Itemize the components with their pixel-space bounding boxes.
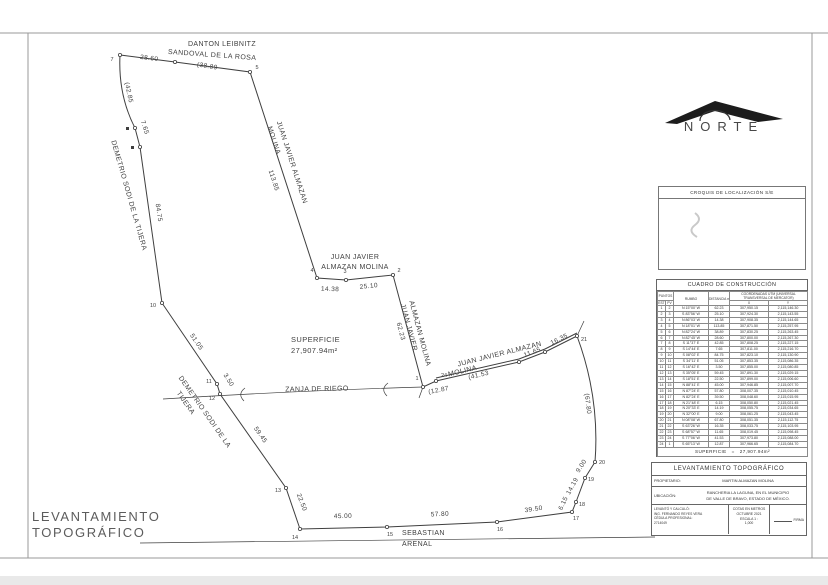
col-header-est: EST <box>658 301 666 306</box>
drawing-label: 39.50 <box>524 505 543 515</box>
north-arrow: NORTE <box>648 86 808 150</box>
page-edge-strip <box>0 576 828 585</box>
drawing-label: (67.80 <box>583 393 592 415</box>
point-number: 18 <box>579 502 585 508</box>
drawing-label: 14.19 <box>565 477 580 496</box>
drawing-label: 6.15 <box>557 495 569 511</box>
drawing-label: 113.85 <box>267 169 280 192</box>
location-sketch-canvas <box>659 199 805 269</box>
corner-tick <box>577 321 584 336</box>
sheet-title-line2: TOPOGRÁFICO <box>32 525 160 541</box>
drawing-label: ALMAZAN MOLINA <box>321 264 388 271</box>
point-marker <box>543 350 546 353</box>
point-marker <box>344 278 347 281</box>
drawing-label: ARENAL <box>402 541 432 548</box>
construction-table-box: CUADRO DE CONSTRUCCIÓN PUNTOS RUMBO DIST… <box>656 279 808 457</box>
surveyor-cell: LEVANTÓ Y CALCULÓ: ING. FERNANDO REYES V… <box>652 505 728 534</box>
location-line2: DE VALLE DE BRAVO, ESTADO DE MÉXICO. <box>690 496 806 502</box>
point-marker <box>575 334 578 337</box>
location-sketch-title: CROQUIS DE LOCALIZACIÓN S/E <box>659 187 805 199</box>
point-marker <box>583 476 586 479</box>
owner-row: PROPIETARIO: MARTIN ALMAZAN MOLINA <box>652 476 806 487</box>
point-marker <box>248 70 251 73</box>
survey-content: 1234571011121314151617181920212462.2325.… <box>109 41 655 548</box>
point-number: 21 <box>581 337 587 343</box>
point-number: 24 <box>441 373 447 379</box>
location-row: UBICACIÓN: RANCHERIA LA LAGUNA, EN EL MU… <box>652 487 806 505</box>
superficie-eq: = <box>732 449 735 454</box>
zanja-arc-mark <box>384 383 388 396</box>
drawing-label: 59.45 <box>252 426 268 445</box>
point-number: 2 <box>397 268 400 274</box>
drawing-label: SUPERFICIE <box>291 335 340 344</box>
croquis-sketch <box>691 213 699 237</box>
point-marker <box>133 126 136 129</box>
point-number: 16 <box>497 527 503 533</box>
superficie-value: 27,907.94m² <box>740 449 770 454</box>
point-marker <box>570 510 573 513</box>
signature-label: FIRMA <box>793 518 804 522</box>
drawing-label: ZANJA DE RIEGO <box>285 385 349 393</box>
drawing-label: 3.50 <box>222 372 235 388</box>
drawing-label: DEMETRIO SODI DE LA <box>177 375 232 449</box>
road-line <box>140 537 655 543</box>
point-marker <box>173 60 176 63</box>
point-marker <box>385 525 388 528</box>
owner-label: PROPIETARIO: <box>652 479 690 483</box>
point-marker <box>284 486 287 489</box>
point-marker <box>434 379 437 382</box>
point-marker <box>160 301 163 304</box>
superficie-row: SUPERFICIE = 27,907.94m² <box>658 447 808 456</box>
drawing-label: 22.50 <box>295 493 308 513</box>
point-number: 17 <box>573 516 579 522</box>
drawing-label: SEBASTIAN <box>402 530 445 537</box>
drawing-label: 57.80 <box>431 511 450 519</box>
col-header-rumbo: RUMBO <box>674 292 709 306</box>
drawing-label: 25.10 <box>359 282 378 291</box>
signature-line <box>774 521 792 522</box>
drawing-label: 9.00 <box>575 458 589 474</box>
signature-cell: FIRMA <box>770 505 806 534</box>
col-header-coordenadas: COORDENADAS UTM (UNIVERSAL TRANSVERSAL D… <box>730 292 808 301</box>
drawing-label: DANTON LEIBNITZ <box>188 41 256 48</box>
point-number: 20 <box>599 460 605 466</box>
owner-value: MARTIN ALMAZAN MOLINA <box>690 478 806 484</box>
location-sketch-box: CROQUIS DE LOCALIZACIÓN S/E <box>658 186 806 270</box>
point-marker <box>495 520 498 523</box>
point-marker <box>421 385 424 388</box>
point-number: 1 <box>415 376 418 382</box>
point-marker <box>517 360 520 363</box>
superficie-label: SUPERFICIE <box>695 449 727 454</box>
point-number: 10 <box>150 303 156 309</box>
point-square-marker <box>126 127 129 130</box>
point-marker <box>218 392 221 395</box>
drawing-label: 45.00 <box>334 513 352 520</box>
col-header-puntos: PUNTOS <box>658 292 674 301</box>
surveyor-line4: 2714049 <box>654 521 726 526</box>
title-block: LEVANTAMIENTO TOPOGRÁFICO PROPIETARIO: M… <box>651 462 807 536</box>
construction-table: PUNTOS RUMBO DISTANCIA m. COORDENADAS UT… <box>657 291 808 457</box>
scale-line2: 1,000 <box>729 521 769 526</box>
point-marker <box>118 53 121 56</box>
drawing-label: 51.05 <box>188 333 204 352</box>
drawing-label: 84.75 <box>154 203 164 222</box>
point-number: 4 <box>310 268 313 274</box>
point-number: 11 <box>206 379 212 385</box>
drawing-label: 7.65 <box>139 120 150 136</box>
scale-cell: COTAS EN METROS OCTUBRE 2021 ESCALA 1 : … <box>728 505 770 534</box>
drawing-label: (12.87 <box>428 385 450 396</box>
point-marker <box>298 527 301 530</box>
sheet-title-line1: LEVANTAMIENTO <box>32 509 160 525</box>
point-number: 14 <box>292 535 298 541</box>
location-line1: RANCHERIA LA LAGUNA, EN EL MUNICIPIO <box>690 490 806 496</box>
title-block-title: LEVANTAMIENTO TOPOGRÁFICO <box>652 463 806 476</box>
north-label: NORTE <box>684 119 764 134</box>
sheet: 1234571011121314151617181920212462.2325.… <box>0 0 828 585</box>
point-number: 12 <box>209 396 215 402</box>
point-square-marker <box>131 146 134 149</box>
north-arrow-icon: NORTE <box>648 86 808 150</box>
point-number: 13 <box>275 488 281 494</box>
col-header-distancia: DISTANCIA m. <box>709 292 730 306</box>
point-marker <box>138 145 141 148</box>
parcel-boundary <box>120 55 596 529</box>
location-label: UBICACIÓN: <box>652 494 690 498</box>
sheet-corner-title: LEVANTAMIENTO TOPOGRÁFICO <box>32 509 160 540</box>
construction-table-body: 12N 15°00' W62.23307,950.152,115,146.302… <box>658 306 808 448</box>
point-marker <box>574 500 577 503</box>
construction-table-head: PUNTOS RUMBO DISTANCIA m. COORDENADAS UT… <box>658 292 808 306</box>
point-number: 19 <box>588 477 594 483</box>
drawing-label: 28.60 <box>140 54 159 63</box>
credits-row: LEVANTÓ Y CALCULÓ: ING. FERNANDO REYES V… <box>652 505 806 534</box>
point-number: 15 <box>387 532 393 538</box>
point-marker <box>215 382 218 385</box>
drawing-label: JUAN JAVIER <box>331 254 380 261</box>
point-number: 7 <box>110 57 113 63</box>
drawing-label: 14.38 <box>321 286 340 294</box>
point-marker <box>593 460 596 463</box>
point-number: 5 <box>255 65 258 71</box>
point-marker <box>315 276 318 279</box>
drawing-label: (38.89 <box>196 61 218 71</box>
construction-table-title: CUADRO DE CONSTRUCCIÓN <box>657 280 807 291</box>
drawing-label: 27,907.94m² <box>291 346 338 355</box>
drawing-label: SANDOVAL DE LA ROSA <box>168 49 257 62</box>
point-marker <box>391 273 394 276</box>
